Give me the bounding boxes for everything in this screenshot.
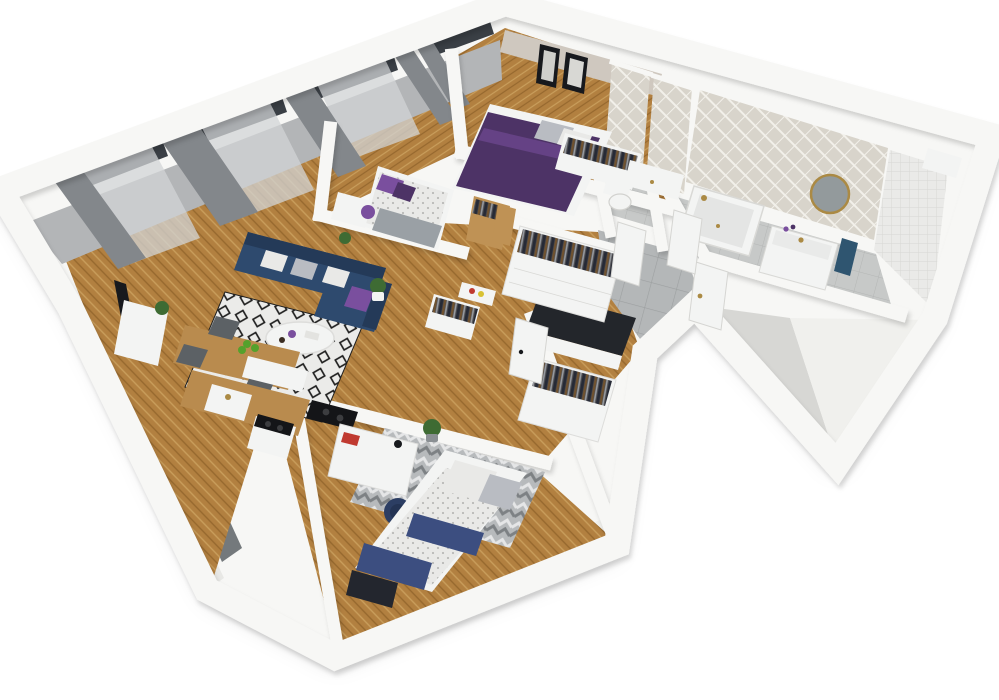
vanity-bottle-purple-1 [783, 226, 788, 231]
apple-2 [251, 344, 259, 352]
vanity-bottle-purple-2 [791, 225, 796, 230]
plant-by-tv [155, 301, 169, 315]
plant-by-sofa [370, 278, 386, 294]
kids-door-handle [519, 350, 523, 354]
wall-art-2-print [567, 58, 584, 88]
round-gold-mirror [811, 175, 849, 213]
shelf-box-yellow [478, 291, 484, 297]
shelf-box-red [469, 288, 475, 294]
floorplan-3d-render [0, 0, 999, 700]
shower-fitting-gold [701, 195, 707, 201]
render-canvas [0, 0, 999, 700]
kids-plant-pot [426, 434, 438, 442]
cooktop-burner-1 [323, 409, 330, 416]
kids-door [509, 318, 548, 384]
plant-pot [372, 292, 384, 301]
small-bedroom-plant [339, 232, 351, 244]
hall-cabinet-knob [650, 180, 654, 184]
coffee-table-deco [279, 337, 285, 343]
entrance-door-handle [698, 294, 703, 299]
toilet-bowl [609, 194, 631, 210]
vanity-faucet-gold [798, 237, 803, 242]
cooker-burner-1 [265, 421, 271, 427]
tub-drain-gold [716, 224, 720, 228]
sink-faucet-gold [225, 394, 231, 400]
small-chair-purple [361, 205, 375, 219]
cooker-burner-2 [277, 425, 283, 431]
cooktop-burner-2 [337, 415, 344, 422]
coffee-table-vase [288, 330, 296, 338]
apple-3 [238, 346, 246, 354]
kids-desk-lamp [394, 440, 402, 448]
